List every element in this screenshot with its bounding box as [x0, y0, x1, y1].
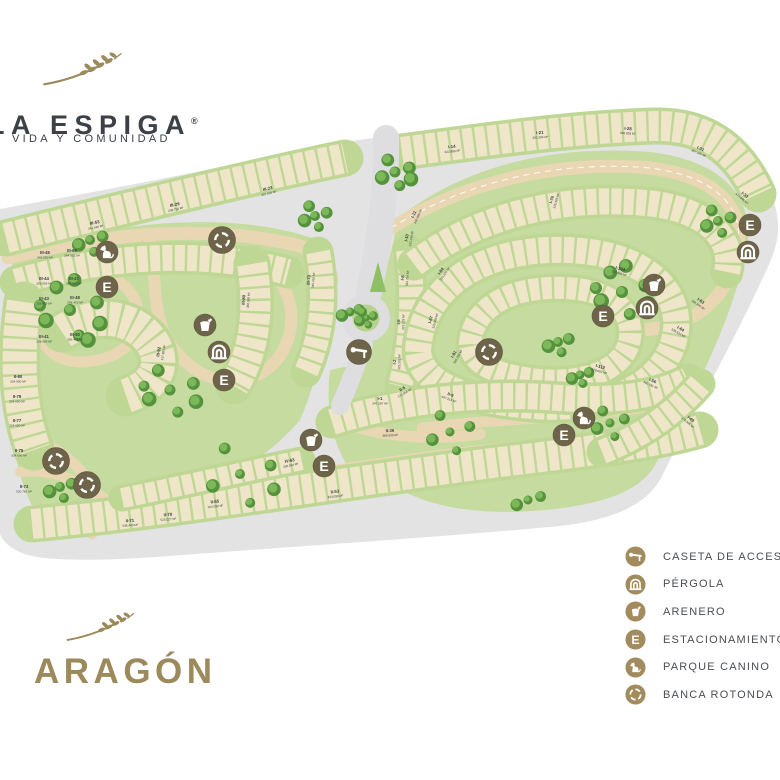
svg-text:E: E	[319, 458, 328, 474]
legend-label: CASETA DE ACCESO	[663, 551, 780, 563]
marker-arenero	[300, 429, 322, 451]
legend-item-parque-canino: PARQUE CANINO	[620, 653, 780, 681]
dog-icon	[625, 657, 646, 678]
marker-pergola	[208, 341, 230, 363]
registered-mark: ®	[191, 116, 198, 126]
marker-parking: E	[553, 424, 575, 446]
marker-parking: E	[592, 305, 614, 327]
roundabout-bench-icon	[625, 684, 646, 705]
marker-rotonda	[476, 339, 503, 366]
marker-parking: E	[739, 214, 761, 236]
marker-pergola	[737, 241, 759, 263]
marker-parking: E	[213, 369, 235, 391]
legend-label: ARENERO	[663, 606, 726, 618]
marker-caseta	[347, 340, 372, 365]
marker-pergola	[636, 297, 658, 319]
marker-rotonda	[43, 448, 70, 475]
marker-parking: E	[313, 455, 335, 477]
legend-label: BANCA ROTONDA	[663, 689, 774, 701]
legend-item-banca-rotonda: BANCA ROTONDA	[620, 681, 780, 709]
legend-item-pergola: PÉRGOLA	[620, 571, 780, 599]
map-legend: CASETA DE ACCESO PÉRGOLA ARENERO E ESTAC…	[620, 543, 780, 709]
parking-icon: E	[625, 629, 646, 650]
svg-text:E: E	[745, 217, 754, 233]
wheat-icon	[64, 612, 136, 645]
marker-dog	[96, 241, 118, 263]
legend-item-estacionamiento: E ESTACIONAMIENTO	[620, 626, 780, 654]
svg-text:E: E	[598, 308, 607, 324]
marker-dog	[573, 407, 595, 429]
svg-text:E: E	[631, 633, 639, 647]
sandbox-bucket-icon	[625, 601, 646, 622]
legend-item-arenero: ARENERO	[620, 598, 780, 626]
marker-arenero	[194, 314, 216, 336]
access-gate-icon	[625, 546, 646, 567]
legend-label: PÉRGOLA	[663, 578, 725, 590]
wheat-icon	[40, 52, 124, 90]
marker-rotonda	[74, 472, 101, 499]
svg-text:E: E	[559, 427, 568, 443]
legend-item-caseta: CASETA DE ACCESO	[620, 543, 780, 571]
legend-label: PARQUE CANINO	[663, 661, 770, 673]
svg-text:E: E	[219, 372, 228, 388]
marker-arenero	[643, 274, 665, 296]
svg-text:E: E	[102, 279, 111, 295]
marker-rotonda	[209, 227, 236, 254]
brand-tagline: VIDA Y COMUNIDAD	[12, 133, 171, 145]
marker-parking: E	[96, 276, 118, 298]
legend-label: ESTACIONAMIENTO	[663, 634, 780, 646]
pergola-icon	[625, 574, 646, 595]
section-name: ARAGÓN	[34, 652, 217, 692]
